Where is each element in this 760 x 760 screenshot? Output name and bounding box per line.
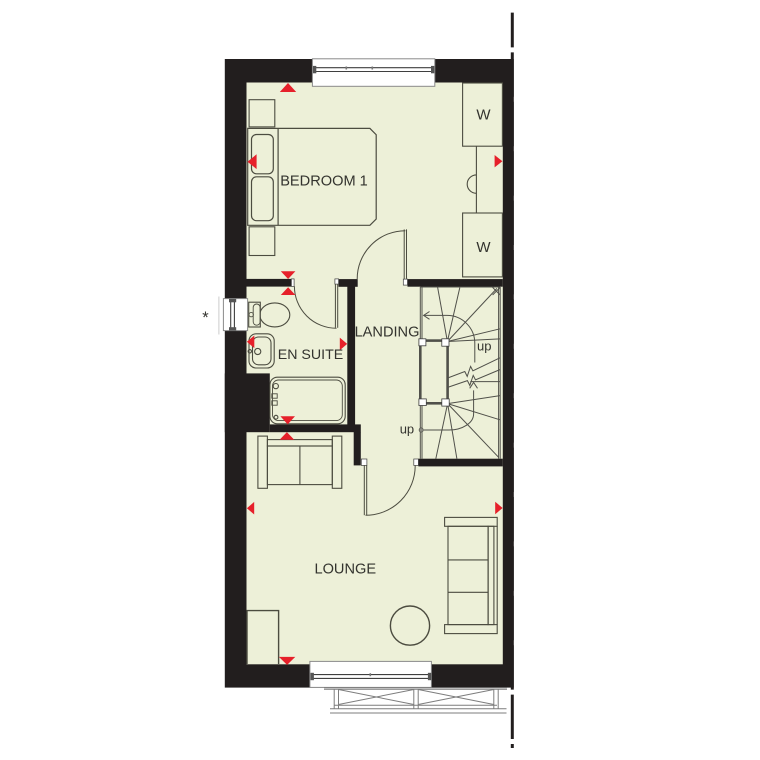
- svg-text:BEDROOM 1: BEDROOM 1: [280, 173, 368, 189]
- svg-text:W: W: [476, 239, 491, 256]
- svg-text:EN SUITE: EN SUITE: [278, 347, 343, 363]
- svg-text:*: *: [202, 309, 209, 327]
- svg-text:W: W: [476, 106, 491, 123]
- svg-text:LOUNGE: LOUNGE: [314, 562, 376, 578]
- svg-text:up: up: [400, 422, 414, 437]
- svg-text:LANDING: LANDING: [355, 324, 420, 340]
- svg-text:up: up: [477, 338, 491, 353]
